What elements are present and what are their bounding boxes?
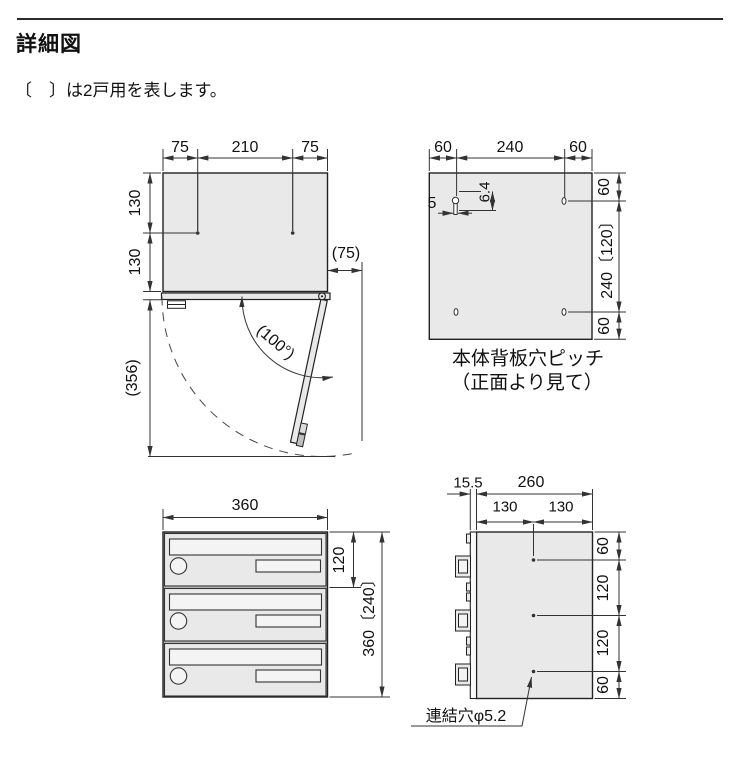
dim-label: 130 bbox=[548, 499, 573, 516]
side-view-drawing bbox=[411, 489, 626, 726]
dim-label: 60 bbox=[595, 537, 613, 555]
dim-label: (75) bbox=[332, 245, 360, 263]
dim-label: 120 bbox=[595, 575, 613, 602]
dim-label: (356) bbox=[124, 359, 142, 396]
dim-label: 60 bbox=[595, 676, 613, 694]
dim-label: 60 bbox=[596, 317, 614, 335]
dim-label: 60 bbox=[596, 178, 614, 196]
dim-label: 260 bbox=[518, 474, 545, 492]
link-hole-middle bbox=[532, 614, 536, 618]
side-view-tabs bbox=[456, 534, 471, 685]
link-hole-label: 連結穴φ5.2 bbox=[426, 702, 507, 726]
dim-label: 240 bbox=[497, 139, 524, 157]
link-hole-top bbox=[532, 558, 536, 562]
door-swing-arc bbox=[162, 297, 355, 457]
dim-label: 210 bbox=[232, 139, 259, 157]
detail-drawing-page: 詳細図 〔 〕は2戸用を表します。 bbox=[0, 0, 740, 758]
dim-label: 360〔240〕 bbox=[355, 571, 379, 656]
dim-label: 130 bbox=[492, 499, 517, 516]
top-view-body bbox=[163, 173, 328, 292]
top-view-hinge-pin bbox=[321, 295, 323, 297]
back-panel-caption-line1: 本体背板穴ピッチ bbox=[452, 344, 604, 371]
dim-label: 360 bbox=[232, 497, 259, 515]
dim-label: 130 bbox=[127, 249, 145, 276]
top-view-open-door bbox=[290, 299, 333, 446]
dim-label: 75 bbox=[301, 139, 319, 157]
side-view-door-strip bbox=[470, 532, 476, 699]
dim-label: 75 bbox=[171, 139, 189, 157]
top-view-drawing bbox=[143, 149, 362, 457]
dim-label: 130 bbox=[127, 190, 145, 217]
top-view-hole-right bbox=[291, 231, 295, 235]
dim-label: 5 bbox=[428, 195, 437, 213]
link-hole-bottom bbox=[532, 670, 536, 674]
back-hole-bottom-right bbox=[562, 309, 566, 316]
dim-label: 60 bbox=[434, 139, 452, 157]
top-view-closed-door bbox=[162, 293, 331, 300]
dim-label: 240〔120〕 bbox=[593, 213, 617, 298]
dim-label: 6.4 bbox=[477, 182, 494, 203]
front-view-doors bbox=[165, 534, 327, 697]
back-hole-bottom-left bbox=[454, 309, 458, 316]
back-hole-top-right bbox=[562, 198, 566, 205]
back-panel-caption-line2: （正面より見て） bbox=[451, 368, 603, 395]
dim-label: 60 bbox=[569, 139, 587, 157]
keyhole-circle bbox=[452, 197, 458, 203]
dim-label: 15.5 bbox=[453, 475, 482, 492]
top-view-hole-left bbox=[196, 231, 200, 235]
dim-label: 120 bbox=[595, 630, 613, 657]
dim-label: 120 bbox=[331, 547, 349, 574]
